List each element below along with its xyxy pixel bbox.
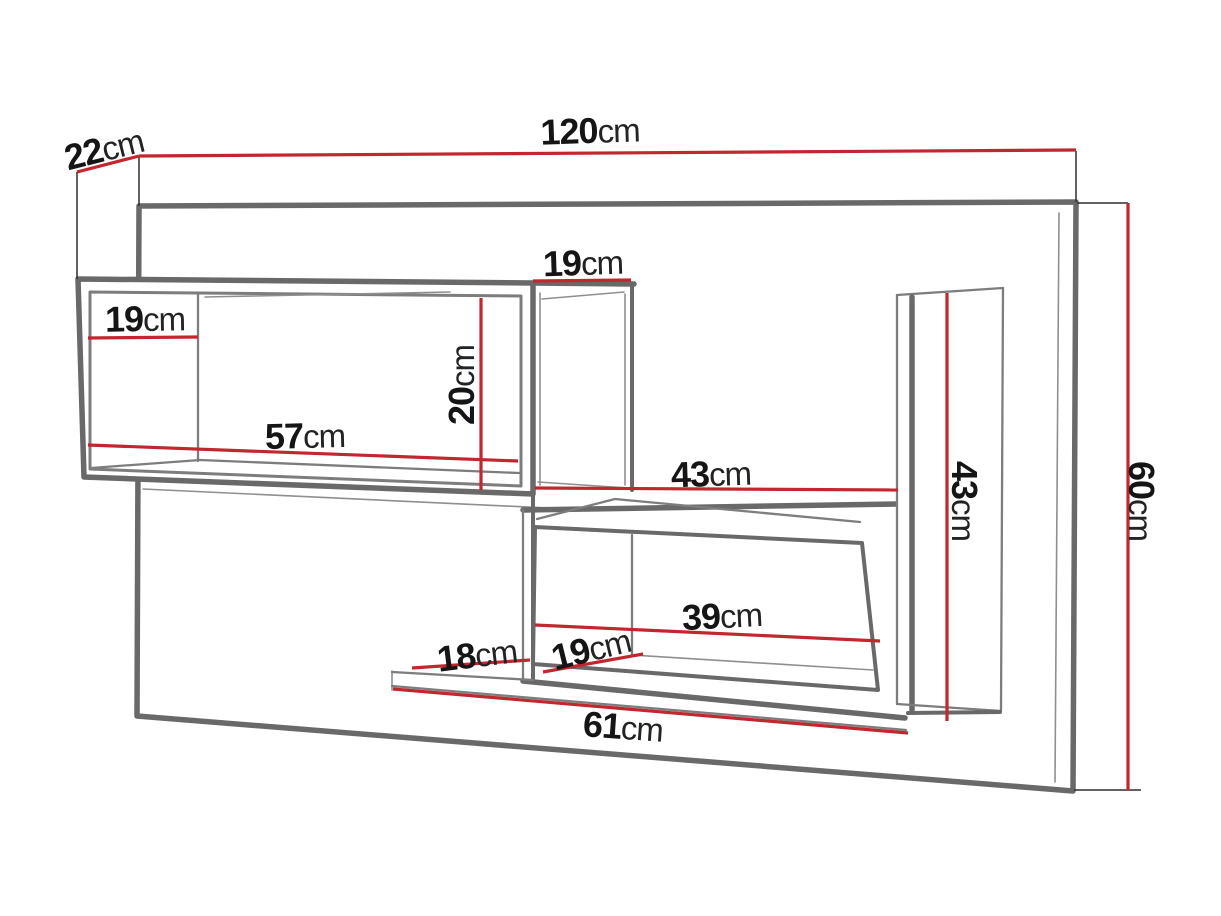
dim-label-upper-interior-height: 20cm (444, 345, 480, 425)
dim-line-120 (139, 150, 1076, 156)
dim-label-middle-opening-width: 43cm (670, 455, 751, 494)
dim-label-shelf-width: 61cm (582, 706, 664, 747)
dim-label-upper-left-depth: 19cm (105, 300, 186, 337)
dim-label-overall-height: 60cm (1123, 461, 1159, 541)
dimension-drawing-canvas: 22cm 120cm 19cm 19cm 20cm 57cm 43cm 43cm… (0, 0, 1221, 916)
dim-label-upper-interior-width: 57cm (265, 417, 346, 455)
dim-label-lower-interior-width: 39cm (681, 596, 763, 636)
dim-label-right-compartment-height: 43cm (946, 461, 982, 541)
dim-label-overall-width: 120cm (540, 111, 640, 150)
dim-label-upper-middle-width: 19cm (542, 244, 623, 283)
